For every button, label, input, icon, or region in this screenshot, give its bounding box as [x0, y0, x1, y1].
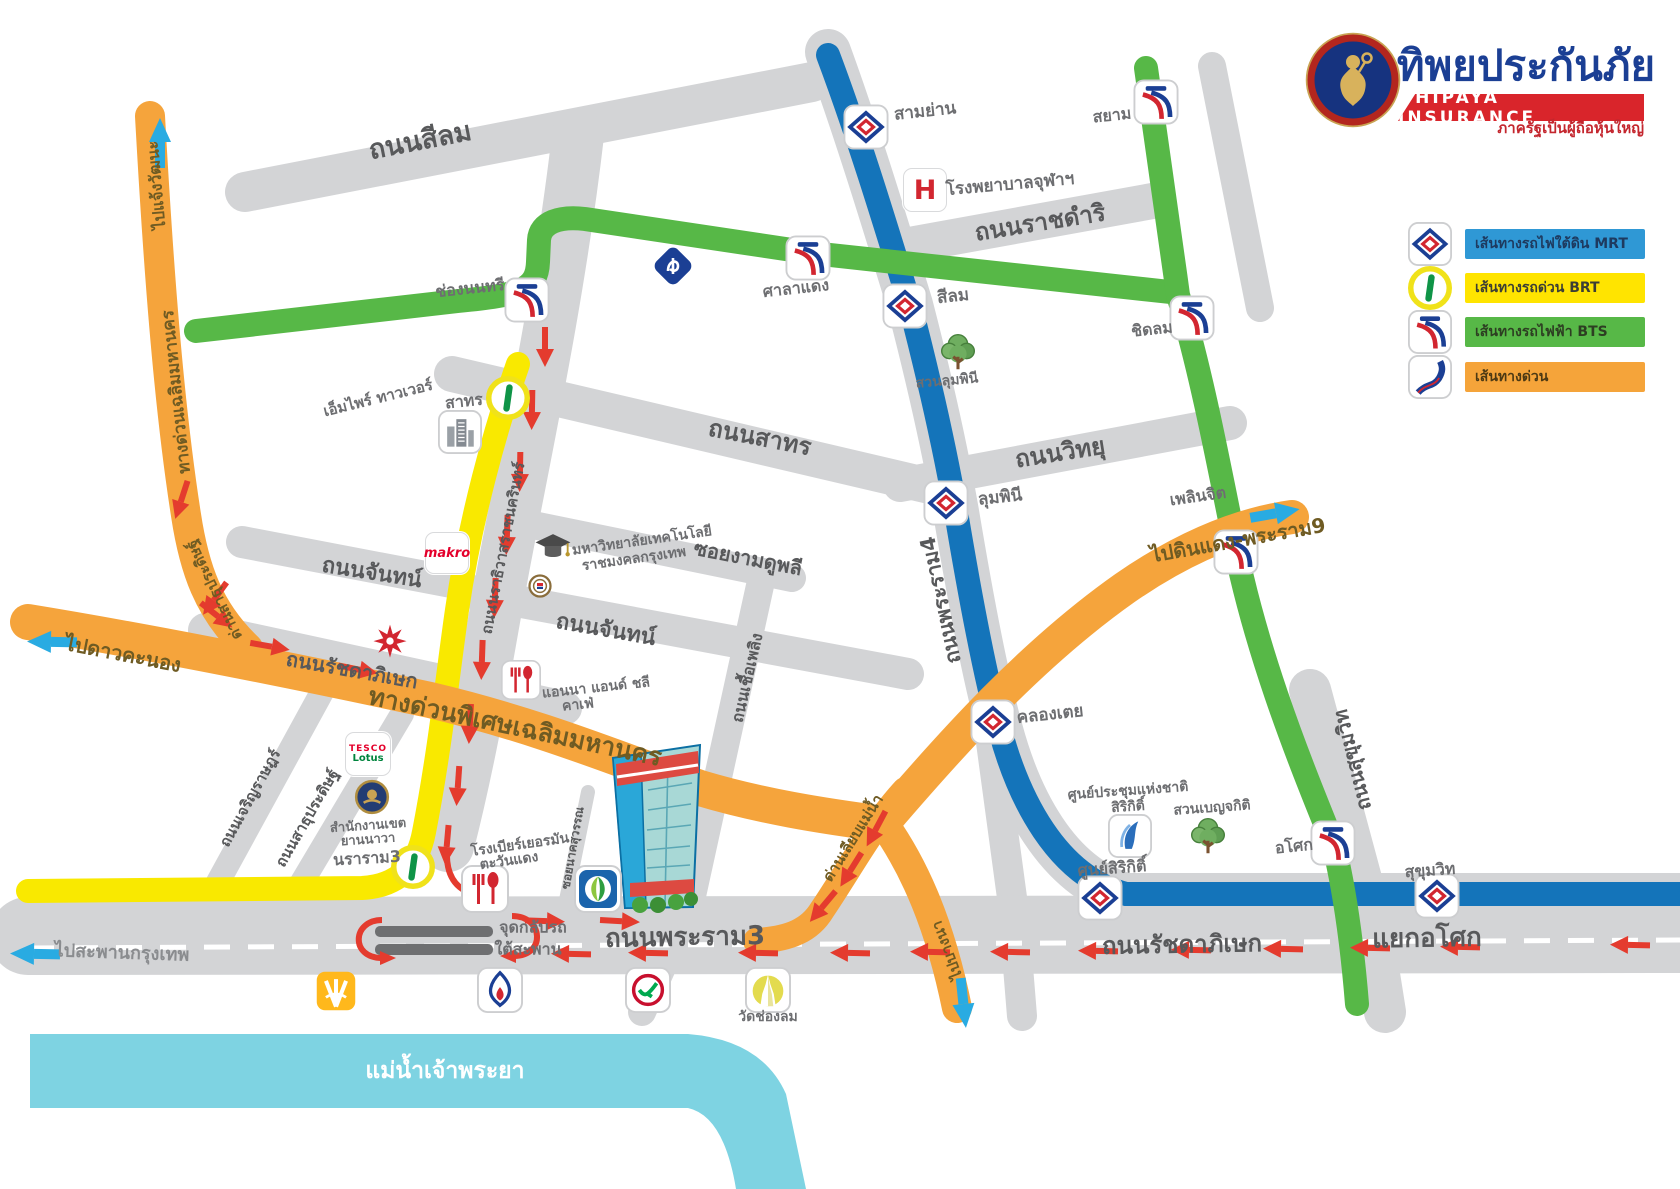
bts-station-icon-chit-lom: [1170, 296, 1215, 341]
map-graphics: [0, 0, 1680, 1189]
station-label-bts-chit-lom: ชิดลม: [1130, 315, 1174, 344]
makro-icon: makro: [425, 532, 469, 574]
bangchak-icon: [574, 865, 622, 913]
road-chitlom-stub: [1212, 66, 1260, 308]
tn-medal-icon: [522, 568, 558, 604]
legend-label-mrt: เส้นทางรถไฟใต้ดิน MRT: [1465, 229, 1645, 259]
place-label-wat-chong-lom: วัดช่องลม: [738, 1006, 798, 1028]
restaurant-icon-anna-cafe: [501, 660, 541, 700]
place-label-sirikit-center-line2: สิริกิติ์: [1110, 795, 1145, 819]
tesco-lotus-icon: TESCOLotus: [345, 732, 391, 776]
dhipaya-logo-emblem: [1305, 32, 1401, 128]
bts-station-icon-chong-nonsi: [505, 278, 550, 323]
legend-label-bts: เส้นทางรถไฟฟ้า BTS: [1465, 317, 1645, 347]
brt-legend-icon: [1408, 266, 1452, 310]
bts-station-icon-asok: [1311, 821, 1356, 866]
station-label-mrt-silom: สีลม: [936, 281, 971, 311]
bts-legend-icon: [1408, 310, 1452, 354]
station-label-brt-sathorn: สาทร: [444, 388, 484, 417]
sirikit-convention-icon: [1108, 814, 1152, 858]
legend-row-bts: เส้นทางรถไฟฟ้า BTS: [1408, 310, 1645, 354]
mrt-legend-icon: [1408, 222, 1452, 266]
logo-title: ทิพยประกันภัย: [1397, 33, 1655, 99]
legend-row-expressway: เส้นทางด่วน: [1408, 355, 1645, 399]
road-silom: [245, 82, 812, 192]
mrt-station-icon-khlong-toei: [971, 700, 1016, 745]
map-canvas: ทิพยประกันภัย DHIPAYA INSURANCE ภาครัฐเป…: [0, 0, 1680, 1189]
road-label-asok-intersection: แยกอโศก: [1372, 917, 1482, 960]
brt-station-icon-sathorn: [486, 376, 530, 420]
mrt-station-icon-silom: [883, 284, 928, 329]
road-label-rama3: ถนนพระราม3: [605, 915, 766, 959]
legend-row-brt: เส้นทางรถด่วน BRT: [1408, 266, 1645, 310]
expressway-legend-icon: [1408, 355, 1452, 399]
logo-tagline: ภาครัฐเป็นผู้ถือหุ้นใหญ่: [1497, 116, 1644, 140]
empire-tower-icon: [438, 410, 482, 454]
legend-row-mrt: เส้นทางรถไฟใต้ดิน MRT: [1408, 222, 1645, 266]
label-u-turn-line2: ใต้สะพาน: [494, 938, 561, 963]
place-label-yannawa-office-line2: ยานนาวา: [340, 827, 396, 852]
yannawa-district-office-icon: [352, 777, 392, 817]
station-label-bts-asok: อโศก: [1274, 833, 1314, 862]
ptt-icon: [477, 967, 523, 1013]
bangkok-bank-icon: [649, 242, 697, 290]
station-label-mrt-sukhumvit: สุขุมวิท: [1404, 857, 1456, 885]
legend-label-expressway: เส้นทางด่วน: [1465, 362, 1645, 392]
mrt-station-icon-lumphini: [924, 481, 969, 526]
station-label-mrt-lumphini: ลุมพินี: [976, 481, 1023, 512]
mrt-station-icon-sam-yan: [844, 105, 889, 150]
krungsri-bank-icon: [314, 969, 358, 1013]
legend-label-brt: เส้นทางรถด่วน BRT: [1465, 273, 1645, 303]
station-label-mrt-sirikit: ศูนย์สิริกิติ์: [1077, 854, 1147, 884]
university-cap-icon: [531, 524, 575, 568]
kasikorn-bank-icon: [625, 967, 671, 1013]
place-label-anna-cafe-line2: คาเฟ่: [561, 692, 595, 717]
hospital-icon: H: [903, 168, 947, 212]
bts-station-icon-siam: [1134, 80, 1179, 125]
station-label-bts-siam: สยาม: [1091, 102, 1132, 131]
label-chao-phraya-river: แม่น้ำเจ้าพระยา: [365, 1053, 524, 1089]
direction-label-krungthep-bridge: ไปสะพานกรุงเทพ: [54, 935, 190, 969]
road-label-ratchadaphisek-east: ถนนรัชดาภิเษก: [1102, 923, 1263, 965]
